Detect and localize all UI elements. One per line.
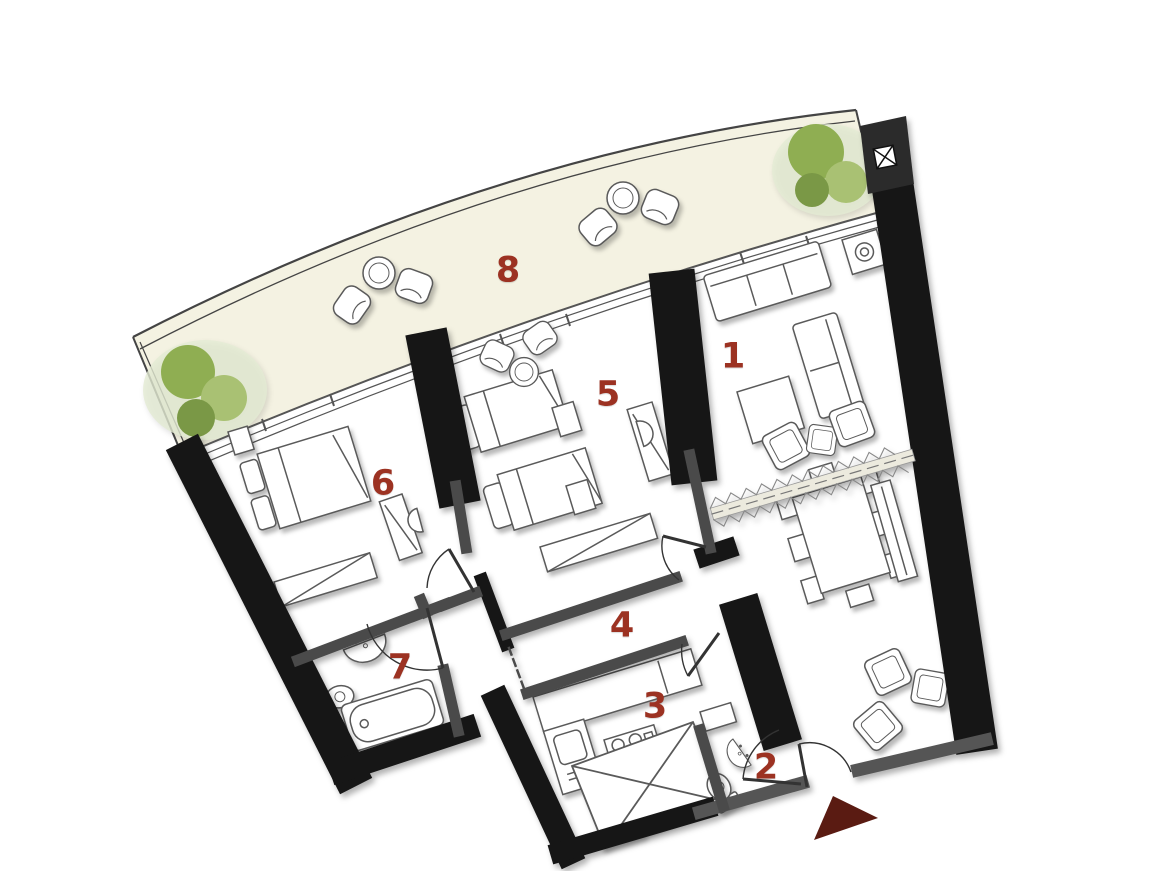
outdoor-table-icon: [607, 182, 639, 214]
table-icon: [510, 358, 539, 387]
room-label-kitchen: 3: [643, 690, 667, 725]
room-label-bathroom: 7: [388, 651, 412, 686]
room-label-bedroom1: 6: [371, 467, 395, 502]
wall-divider-6-5: [430, 352, 456, 484]
wall-bath-right-a: [421, 600, 426, 612]
tree-icon: [795, 173, 829, 207]
room-label-hallway: 4: [610, 609, 634, 644]
room-label-terrace: 8: [496, 254, 520, 289]
entrance-arrow-icon: [814, 796, 878, 840]
room-label-wc: 2: [754, 751, 778, 786]
room-label-bedroom2: 5: [596, 378, 620, 413]
floor-plan-page: 8 1 5 6 4 7 3 2: [0, 0, 1167, 871]
outdoor-table-icon: [363, 257, 395, 289]
floor-plan-canvas: [0, 0, 1167, 871]
tree-icon: [825, 161, 867, 203]
wall-divider-5-1: [674, 294, 692, 460]
pouf-icon: [910, 668, 950, 708]
corner-marker: [860, 116, 914, 194]
tree-icon: [177, 399, 215, 437]
room-label-living: 1: [721, 340, 745, 375]
